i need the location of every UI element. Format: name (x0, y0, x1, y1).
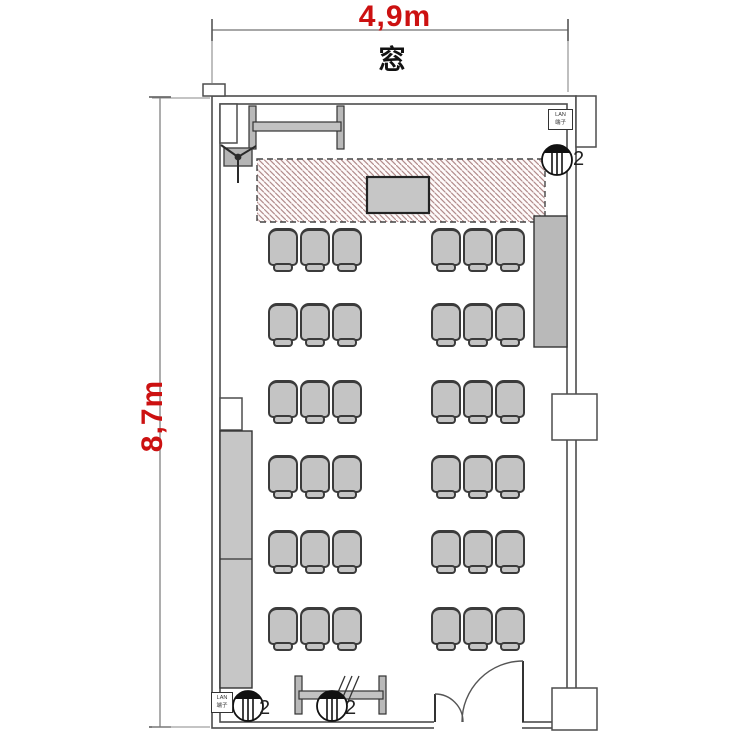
lan-panel-line2: 端子 (549, 119, 572, 127)
speaker-count-label: 2 (345, 697, 356, 720)
chair (300, 607, 330, 645)
chair (268, 303, 298, 341)
chair (463, 607, 493, 645)
chair (268, 380, 298, 418)
chair (431, 303, 461, 341)
chair (431, 380, 461, 418)
chair (463, 455, 493, 493)
chair (495, 303, 525, 341)
window-label: 窓 (362, 38, 422, 77)
speaker-count-label: 2 (259, 697, 270, 720)
lan-panel-line2: 端子 (212, 702, 232, 710)
chair (431, 607, 461, 645)
chair (332, 455, 362, 493)
lan-panel-line1: LAN (549, 111, 572, 119)
chair (300, 303, 330, 341)
chair (431, 455, 461, 493)
chair (300, 380, 330, 418)
chair (332, 303, 362, 341)
chair (495, 455, 525, 493)
chair (268, 455, 298, 493)
chair (495, 380, 525, 418)
chair (431, 530, 461, 568)
chair (332, 228, 362, 266)
chair (463, 228, 493, 266)
lan-panel: LAN 端子 (211, 692, 233, 713)
chair (268, 228, 298, 266)
speaker-count-label: 2 (573, 148, 584, 171)
floor-plan: 4,9m 窓 8,7m 2 2 2 LAN 端子 LAN 端子 (0, 0, 750, 750)
chair (332, 607, 362, 645)
chair (495, 530, 525, 568)
chair (332, 530, 362, 568)
chair (463, 530, 493, 568)
chair (300, 228, 330, 266)
chair (268, 607, 298, 645)
dimension-height-label: 8,7m (136, 366, 168, 466)
chair (300, 530, 330, 568)
dimension-width-label: 4,9m (330, 0, 460, 34)
seating-area (0, 0, 750, 750)
chair (495, 607, 525, 645)
lan-panel-line1: LAN (212, 694, 232, 702)
lan-panel: LAN 端子 (548, 109, 573, 130)
chair (463, 303, 493, 341)
chair (463, 380, 493, 418)
chair (332, 380, 362, 418)
chair (495, 228, 525, 266)
chair (268, 530, 298, 568)
chair (431, 228, 461, 266)
chair (300, 455, 330, 493)
